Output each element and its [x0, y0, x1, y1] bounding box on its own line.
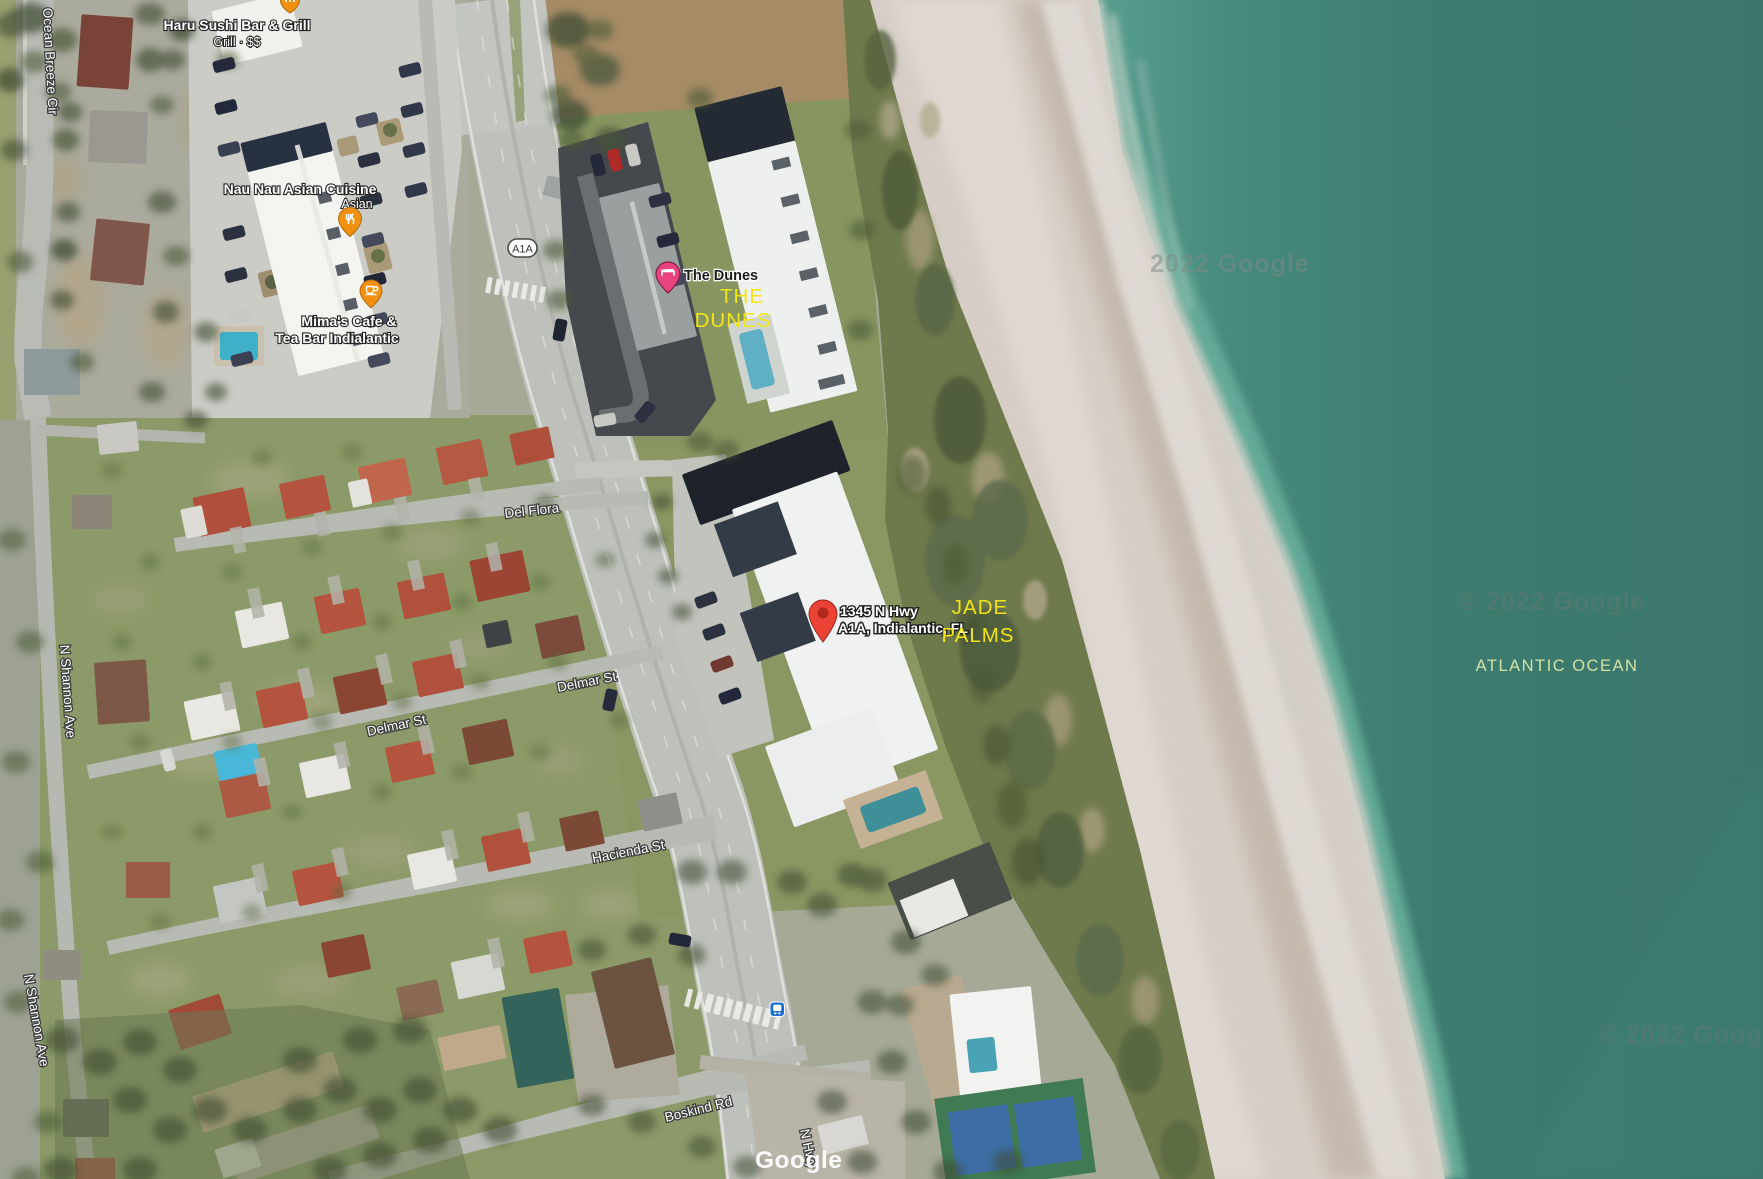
svg-text:DUNES: DUNES — [695, 309, 772, 332]
svg-text:JADE: JADE — [952, 596, 1008, 619]
svg-text:A1A: A1A — [512, 244, 533, 256]
svg-text:The Dunes: The Dunes — [684, 268, 758, 284]
svg-text:2022 Google: 2022 Google — [1150, 250, 1310, 278]
svg-text:Mima's Cafe &: Mima's Cafe & — [301, 313, 396, 329]
svg-text:THE: THE — [720, 285, 764, 308]
svg-text:Tea Bar Indialantic: Tea Bar Indialantic — [275, 330, 399, 346]
svg-text:1345 N Hwy: 1345 N Hwy — [840, 603, 918, 619]
svg-text:Haru Sushi Bar & Grill: Haru Sushi Bar & Grill — [163, 17, 310, 33]
svg-text:PALMS: PALMS — [942, 624, 1015, 647]
svg-text:© 2022 Google: © 2022 Google — [1458, 588, 1645, 616]
svg-text:Nau Nau Asian Cuisine: Nau Nau Asian Cuisine — [224, 181, 377, 197]
svg-text:Grill · $$: Grill · $$ — [213, 35, 260, 49]
svg-text:ATLANTIC OCEAN: ATLANTIC OCEAN — [1476, 657, 1639, 675]
svg-text:© 2022 Google: © 2022 Google — [1598, 1021, 1763, 1049]
svg-text:Google: Google — [755, 1147, 842, 1174]
